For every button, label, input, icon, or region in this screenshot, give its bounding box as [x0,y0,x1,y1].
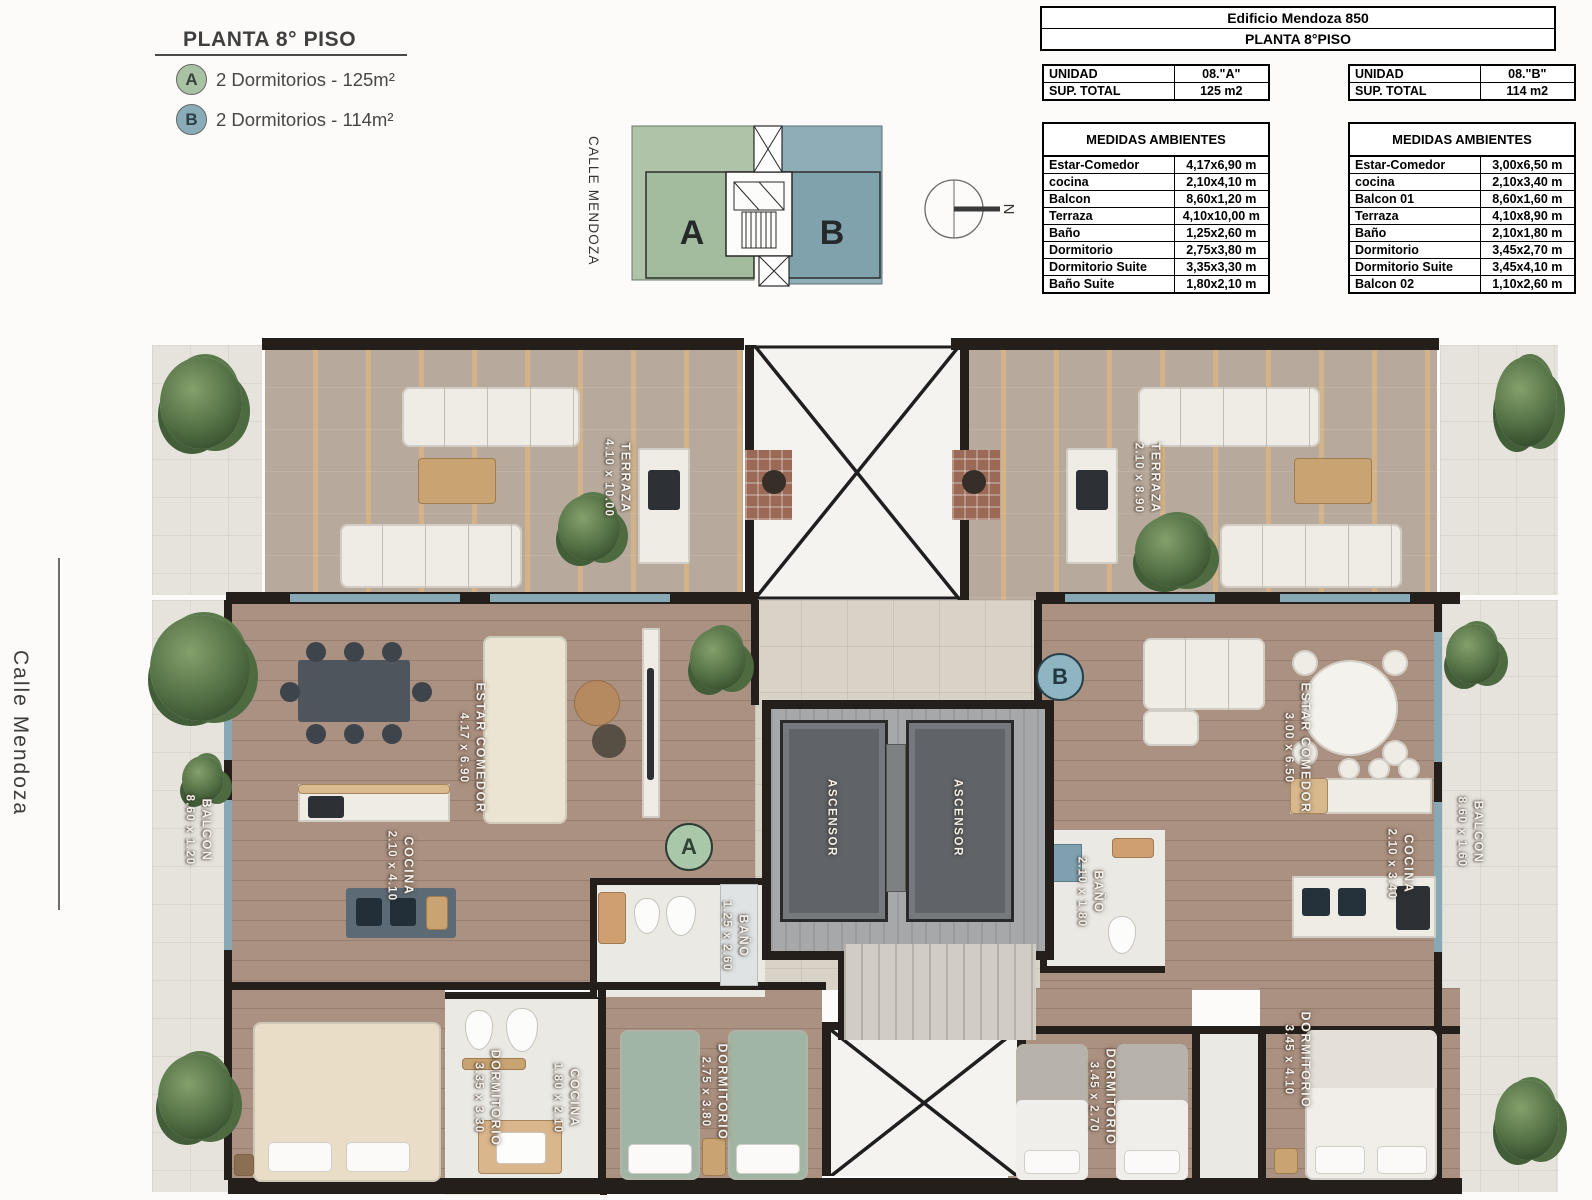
plant [150,615,250,721]
keyplan-diagram: A B [618,120,894,292]
outdoor-sofa [1220,524,1402,588]
room-name-cell: Balcon 02 [1349,276,1480,294]
page-title: PLANTA 8° PISO [183,28,356,52]
plan-badge-b: B [1036,653,1084,701]
room-label-bano-a: BAÑO1.25 x 2.60 [718,901,753,972]
room-label-ascensor-1: ASCENSOR [823,779,840,857]
sink [356,898,382,926]
chair [306,724,326,744]
dining-table [298,660,410,722]
floor-name: PLANTA 8°PISO [1041,29,1555,51]
nightstand [702,1138,726,1176]
unit-b-badge: B [176,104,207,135]
pillow [1024,1150,1080,1174]
keyplan-unit-b: B [820,214,845,252]
unit-a-info-table: UNIDAD 08."A" SUP. TOTAL 125 m2 [1042,64,1270,101]
floorplan-page: PLANTA 8° PISO A 2 Dormitorios - 125m² B… [0,0,1592,1200]
nightstand [234,1154,254,1176]
room-label-bano-b: BAÑO2.10 x 1.80 [1073,857,1108,928]
room-name-cell: Balcon 01 [1349,191,1480,208]
coffee-table [574,680,620,726]
chair [412,682,432,702]
room-label-terraza-a: TERRAZA4.10 x 10.00 [600,439,635,517]
room-label-cocina-b: COCINA2.10 x 3.40 [1383,829,1418,900]
pillow [628,1144,692,1174]
column [962,470,986,494]
chair [382,724,402,744]
room-name-cell: Estar-Comedor [1043,156,1174,174]
room-size-cell: 3,45x2,70 m [1480,242,1575,259]
room-size-cell: 2,10x4,10 m [1174,174,1269,191]
outdoor-sofa [402,387,580,447]
street-label-left: Calle Mendoza [8,650,32,816]
room-name-cell: Balcon [1043,191,1174,208]
room-label-cocina-a: COCINA2.10 x 4.10 [383,831,418,902]
nightstand [1274,1148,1298,1174]
room-name-cell: Baño [1043,225,1174,242]
room-label-ascensor-2: ASCENSOR [949,779,966,857]
plant [690,628,746,690]
room-name-cell: Dormitorio Suite [1349,259,1480,276]
room-size-cell: 8,60x1,20 m [1174,191,1269,208]
room-label-estar-a: ESTAR COMEDOR4.17 x 6.90 [455,683,490,814]
room-size-cell: 2,75x3,80 m [1174,242,1269,259]
stairs [844,944,1036,1040]
room-name-cell: Dormitorio [1043,242,1174,259]
plan-badge-b-letter: B [1052,664,1068,690]
room-label-dormitorio-suite-b: DORMITORIO3.45 x 4.10 [1280,1011,1315,1108]
room-name-cell: Baño Suite [1043,276,1174,294]
room-name-cell: Terraza [1349,208,1480,225]
street-line [58,558,60,910]
wall [951,338,1439,350]
room-name-cell: Terraza [1043,208,1174,225]
wall [1192,1026,1200,1188]
sink [1302,888,1330,916]
sofa [483,636,567,824]
room-label-dormitorio-a: DORMITORIO2.75 x 3.80 [697,1043,732,1140]
chaise [1143,710,1199,746]
plant [1495,357,1557,447]
wardrobe-nook-b [1200,1034,1260,1184]
chair [1382,650,1408,676]
room-name-cell: Dormitorio [1349,242,1480,259]
room-label-estar-b: ESTAR COMEDOR3.00 x 6.50 [1280,683,1315,814]
room-name-cell: cocina [1349,174,1480,191]
room-size-cell: 1,80x2,10 m [1174,276,1269,294]
sink [390,898,416,926]
plant [1135,515,1211,587]
wall [751,600,759,705]
wall [598,988,606,1188]
void-bottom [822,1022,1026,1176]
wall [1258,1026,1266,1188]
room-name-cell: Estar-Comedor [1349,156,1480,174]
plant [1495,1080,1559,1160]
info-value: 125 m2 [1174,83,1269,101]
room-size-cell: 1,25x2,60 m [1174,225,1269,242]
pillow [1124,1150,1180,1174]
pillow [1315,1146,1365,1174]
plan-badge-a: A [665,823,713,871]
legend-label-a: 2 Dormitorios - 125m² [216,69,395,91]
keyplan-unit-a: A [680,214,705,252]
chair [280,682,300,702]
floor-plan: A B TERRAZA4.10 x 10.00 TERRAZA2.10 x 8.… [150,332,1562,1198]
room-size-cell: 3,35x3,30 m [1174,259,1269,276]
elevator-machinery [886,744,906,892]
pillow [346,1142,410,1172]
counter-top [298,784,450,794]
unit-b-info-table: UNIDAD 08."B" SUP. TOTAL 114 m2 [1348,64,1576,101]
info-value: 08."B" [1480,65,1575,83]
bar-stool [1368,758,1390,780]
street-label-keyplan: CALLE MENDOZA [586,136,601,266]
legend-label-b: 2 Dormitorios - 114m² [216,109,394,131]
glass-panel [1280,594,1410,602]
column [762,470,786,494]
room-label-balcon-a: BALCON8.60 x 1.20 [181,795,216,866]
outdoor-table [1294,458,1372,504]
unit-a-medidas-table: MEDIDAS AMBIENTES Estar-Comedor4,17x6,90… [1042,122,1270,294]
duvet [1305,1030,1437,1088]
grill [648,470,680,510]
outdoor-table [418,458,496,504]
info-value: 08."A" [1174,65,1269,83]
room-size-cell: 2,10x1,80 m [1480,225,1575,242]
coffee-table [592,724,626,758]
vanity [598,892,626,944]
pillow [1377,1146,1427,1174]
glass-panel [290,594,460,602]
sink [1338,888,1366,916]
unit-b-medidas-table: MEDIDAS AMBIENTES Estar-Comedor3,00x6,50… [1348,122,1576,294]
grill [1076,470,1108,510]
chair [382,642,402,662]
medidas-title: MEDIDAS AMBIENTES [1349,123,1575,156]
bar-stool [1338,758,1360,780]
pillow [736,1144,800,1174]
room-label-dormitorio-suite-a: DORMITORIO3.35 x 3.30 [470,1049,505,1146]
room-size-cell: 3,00x6,50 m [1480,156,1575,174]
room-size-cell: 2,10x3,40 m [1480,174,1575,191]
tv [647,668,654,780]
room-size-cell: 1,10x2,60 m [1480,276,1575,294]
info-label: SUP. TOTAL [1349,83,1480,101]
plan-badge-a-letter: A [681,834,697,860]
building-title-table: Edificio Mendoza 850 PLANTA 8°PISO [1040,6,1556,51]
glass-panel [224,800,232,950]
north-compass: N [922,172,1022,248]
round-dining-table [1302,660,1398,756]
outdoor-sofa [1138,387,1320,447]
glass-panel [1065,594,1215,602]
info-label: UNIDAD [1043,65,1174,83]
room-label-terraza-b: TERRAZA2.10 x 8.90 [1130,443,1165,514]
cabinet [426,896,448,930]
chair [306,642,326,662]
room-size-cell: 4,10x8,90 m [1480,208,1575,225]
outdoor-sofa [340,524,522,588]
legend: A 2 Dormitorios - 125m² B 2 Dormitorios … [176,64,395,135]
info-value: 114 m2 [1480,83,1575,101]
chair [344,724,364,744]
north-label: N [1000,204,1017,215]
medidas-title: MEDIDAS AMBIENTES [1043,123,1269,156]
unit-a-badge: A [176,64,207,95]
room-label-dormitorio-b: DORMITORIO3.45 x 2.70 [1085,1048,1120,1145]
stove [308,796,344,818]
title-underline [155,54,407,56]
room-size-cell: 3,45x4,10 m [1480,259,1575,276]
info-label: UNIDAD [1349,65,1480,83]
room-size-cell: 4,17x6,90 m [1174,156,1269,174]
wall [262,338,744,350]
info-label: SUP. TOTAL [1043,83,1174,101]
glass-panel [1434,632,1442,762]
building-name: Edificio Mendoza 850 [1041,7,1555,29]
plant [158,1054,234,1140]
room-size-cell: 4,10x10,00 m [1174,208,1269,225]
pillow [268,1142,332,1172]
plant [1446,624,1500,684]
room-label-balcon-b: BALCON8.60 x 1.60 [1453,797,1488,868]
room-name-cell: Dormitorio Suite [1043,259,1174,276]
chair [344,642,364,662]
room-label-bano-suite-a: COCINA1.80 x 2.10 [549,1063,584,1134]
bar-stool [1398,758,1420,780]
vanity [1112,838,1154,858]
room-name-cell: cocina [1043,174,1174,191]
plant [160,357,242,449]
room-size-cell: 8,60x1,60 m [1480,191,1575,208]
chair [1292,650,1318,676]
glass-panel [490,594,670,602]
sofa [1143,638,1265,710]
legend-item-b: B 2 Dormitorios - 114m² [176,104,395,135]
void-cross-icon [831,1030,1017,1176]
room-name-cell: Baño [1349,225,1480,242]
legend-item-a: A 2 Dormitorios - 125m² [176,64,395,95]
